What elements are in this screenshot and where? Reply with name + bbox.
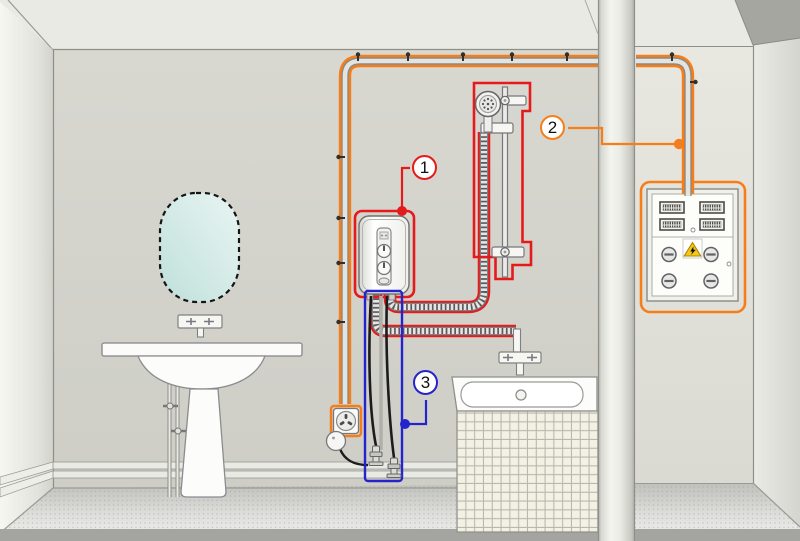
left-wall xyxy=(0,2,53,533)
distribution-panel-group xyxy=(641,182,745,312)
callout-1-label: 1 xyxy=(420,158,429,178)
callout-2-anchor-dot xyxy=(674,139,684,149)
mirror xyxy=(160,193,239,302)
bathtub-tiled-panel xyxy=(457,411,598,532)
pillar xyxy=(598,0,635,541)
bathtub-drain xyxy=(516,390,526,400)
callout-3-label: 3 xyxy=(421,373,430,393)
scene-svg xyxy=(0,0,800,541)
sink-counter xyxy=(102,343,302,356)
heater-control-panel xyxy=(377,228,391,285)
callout-1-badge: 1 xyxy=(412,155,437,180)
power-plug-icon xyxy=(327,432,346,451)
floor-front-edge xyxy=(0,529,800,541)
callout-3-badge: 3 xyxy=(413,370,438,395)
callout-2-badge: 2 xyxy=(540,115,565,140)
bathtub-group xyxy=(452,377,598,532)
callout-3-anchor-dot xyxy=(400,419,410,429)
power-socket-icon xyxy=(334,409,359,434)
right-wall xyxy=(753,38,800,527)
bathroom-installation-diagram: 1 2 3 xyxy=(0,0,800,541)
callout-2-label: 2 xyxy=(548,118,557,138)
high-voltage-warning-triangle-icon xyxy=(683,239,702,258)
